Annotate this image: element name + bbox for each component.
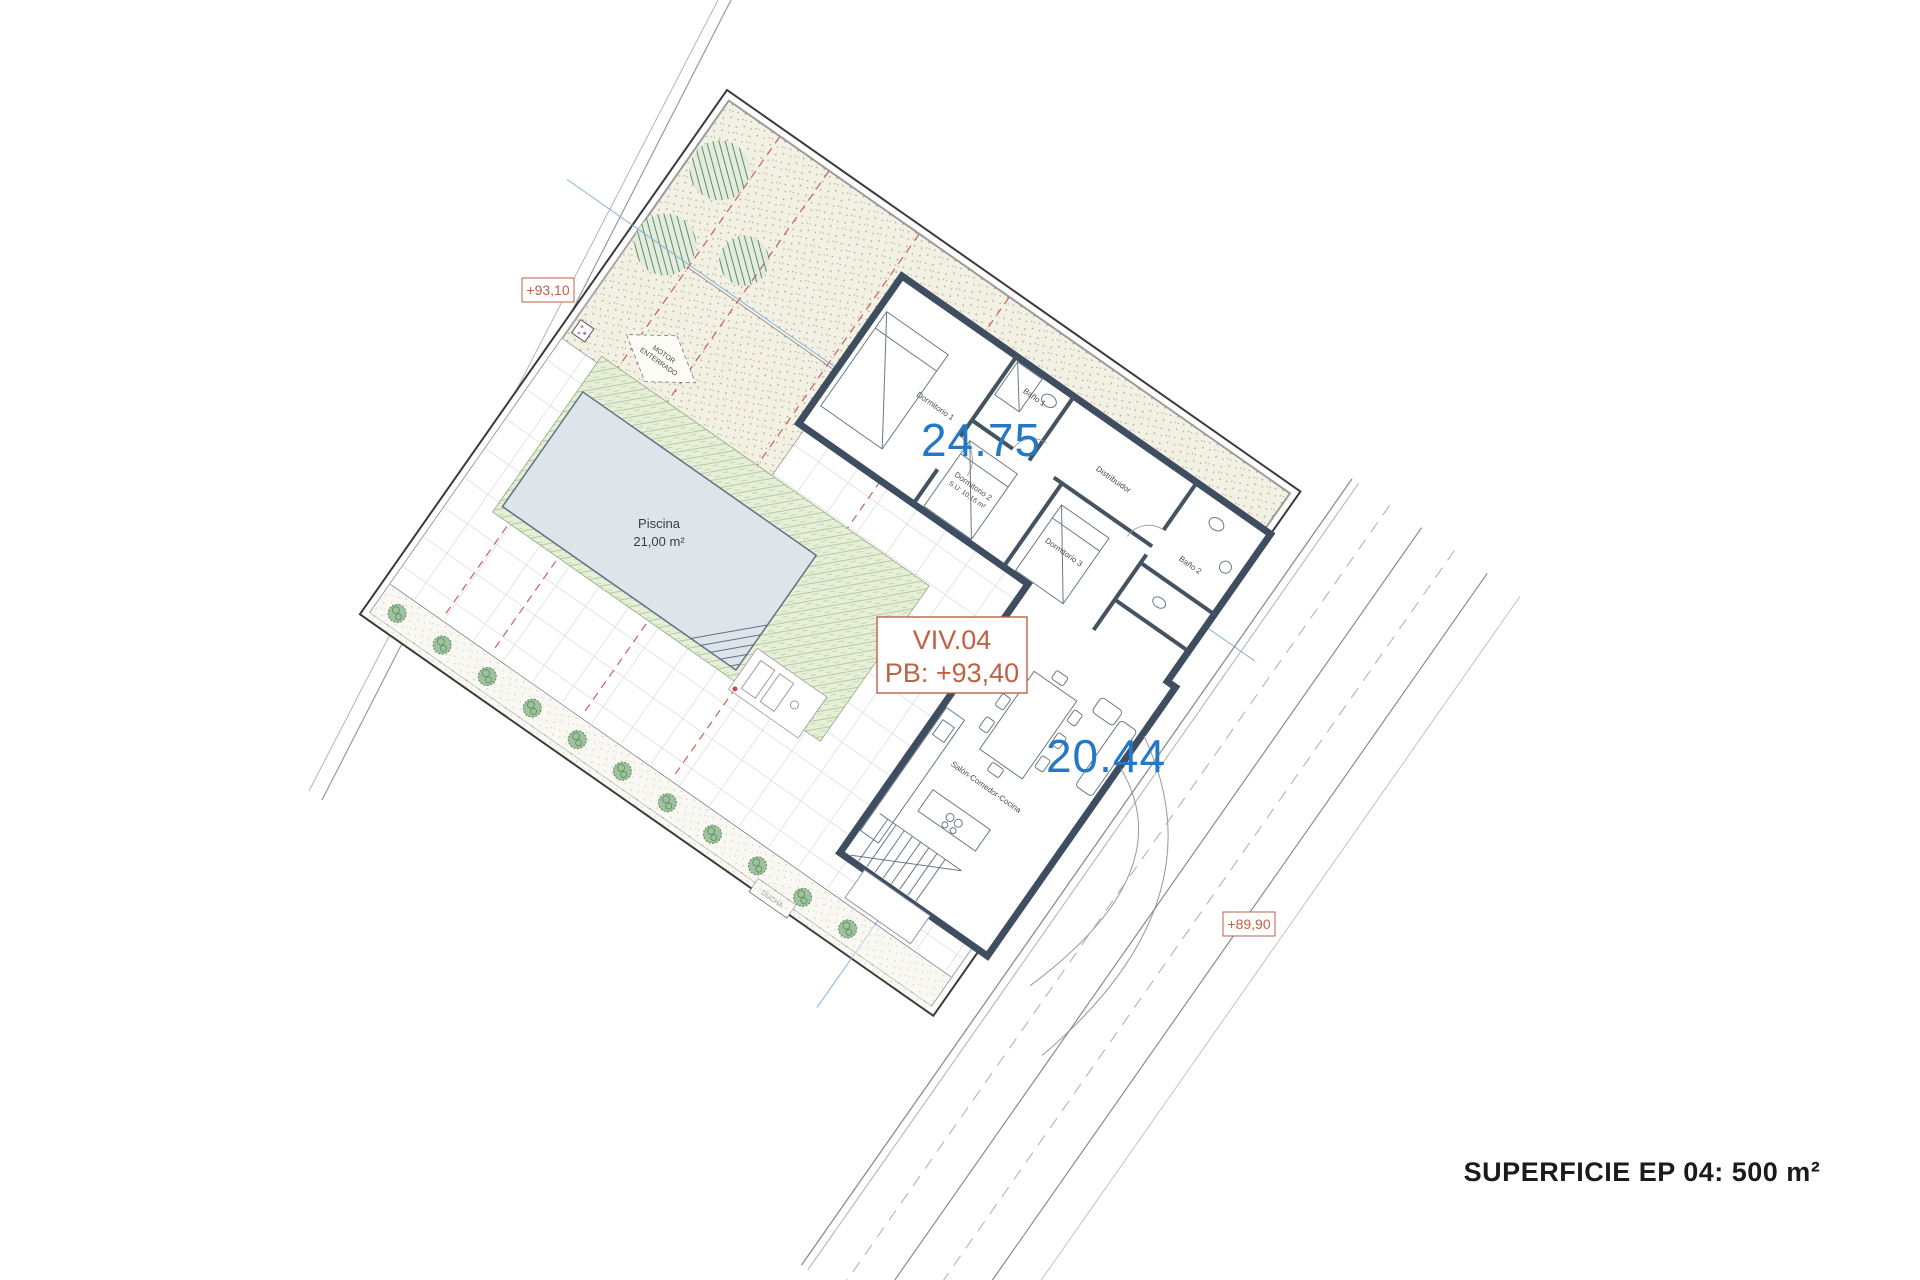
floor-plan-page: MOTOR ENTERRADO (0, 0, 1920, 1280)
svg-text:+93,10: +93,10 (526, 282, 569, 298)
road-elevation-label: +89,90 (1223, 912, 1275, 936)
plot-rotated-group: MOTOR ENTERRADO (134, 11, 1520, 1280)
day-zone-area-label: 20.44 (1046, 730, 1166, 782)
site-plan-drawing: MOTOR ENTERRADO (0, 0, 1920, 1280)
unit-elevation: PB: +93,40 (885, 658, 1019, 688)
svg-text:Piscina: Piscina (638, 516, 681, 531)
unit-name: VIV.04 (913, 625, 992, 655)
unit-label-box: VIV.04 PB: +93,40 (877, 617, 1027, 693)
elevation-label-93-10: +93,10 (522, 278, 574, 302)
svg-text:+89,90: +89,90 (1227, 916, 1270, 932)
svg-text:21,00 m²: 21,00 m² (633, 534, 685, 549)
night-zone-area-label: 24.75 (921, 414, 1041, 466)
surface-footer-label: SUPERFICIE EP 04: 500 m² (1464, 1157, 1821, 1187)
